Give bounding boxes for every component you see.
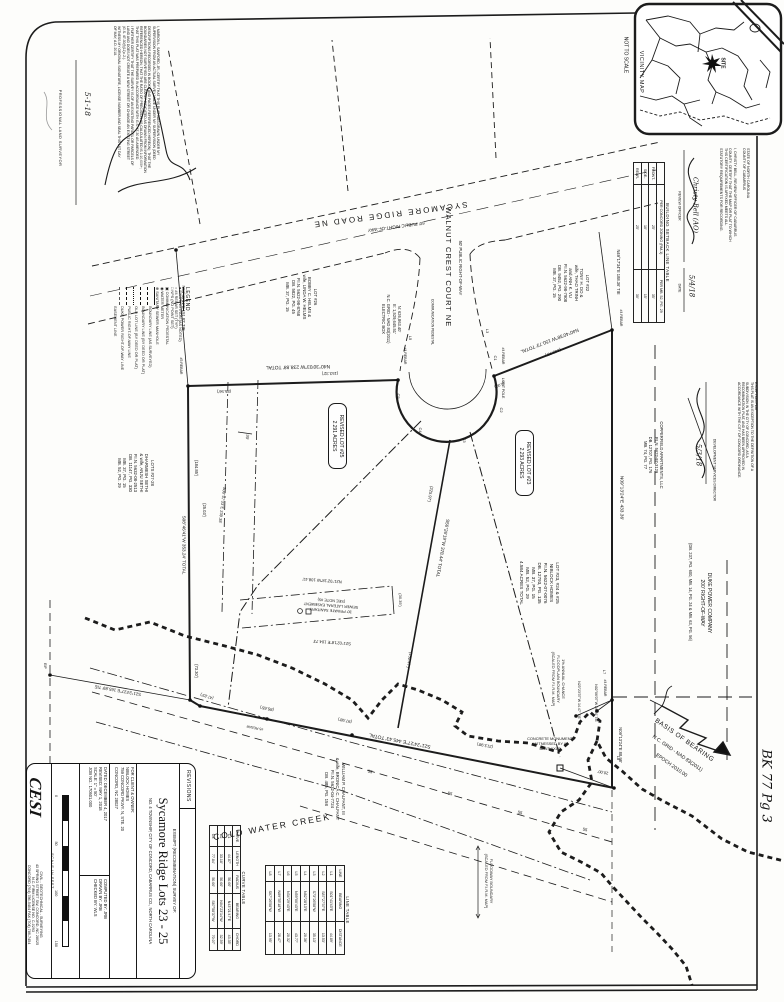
firm-phone-label: CONCORD (704) 786-5404 FAX (704) 786-745… bbox=[27, 831, 31, 978]
scale-bar-label: SCALE IN FEET bbox=[50, 795, 54, 947]
legend-label: BOUNDARY LINE (BY DEED OR PLAT) bbox=[141, 306, 145, 374]
table-cell: 15' bbox=[641, 270, 649, 323]
vicinity-scale-label: NOT TO SCALE bbox=[623, 37, 628, 73]
table-cell: 50.00' bbox=[217, 871, 225, 894]
setback-table-title: BUILDING SETBACK LINE TABLE bbox=[665, 162, 670, 323]
line-tag: L5 bbox=[408, 336, 412, 340]
firm-logo: CESI bbox=[26, 763, 45, 832]
table-cell: DISTANCE bbox=[336, 921, 345, 954]
table-cell: L3 bbox=[309, 866, 318, 882]
table-cell: REAR- bbox=[634, 163, 642, 185]
checked-by-label: CHECKED BY: WLS bbox=[93, 879, 98, 919]
interior-lot-lines bbox=[228, 421, 560, 757]
review-date: 5/4/18 bbox=[688, 275, 695, 298]
monument-note: CONCRETE MONUMENT WITNESSED BY A BENT AX… bbox=[520, 736, 580, 751]
table-cell: 32.59' bbox=[217, 928, 225, 950]
distance-label: (85.56') bbox=[217, 389, 231, 393]
table-cell: 35' bbox=[649, 270, 657, 323]
rebar-label: #4 REBAR bbox=[602, 680, 606, 697]
distance-label: (153.32') bbox=[322, 371, 338, 375]
bearing-label: N40°30'03"W 238.88' TOTAL bbox=[266, 363, 330, 369]
grid-coordinate-block: N: 626,863.40' E: 1,529,645.51' N.C. GRI… bbox=[381, 288, 402, 350]
table-row: FRONT-25'35' bbox=[649, 163, 657, 323]
owner-block: LOT #23, #24 & #25 NIBLOCK HOMES P.I.N. … bbox=[518, 543, 560, 623]
table-row: C233.18'50.00'N04°23'14"W32.59' bbox=[217, 826, 225, 951]
adjoiner-lot22: LOT #22 TONY H. DO & wife, THAO TRINH an… bbox=[551, 246, 590, 320]
scale-bar: 0 50 100 150 SCALE IN FEET bbox=[51, 764, 79, 978]
table-row: C144.87'50.00'N43°21'47"E43.35' bbox=[225, 826, 233, 951]
table-cell: 28.47' bbox=[274, 921, 283, 954]
title-block: REVISIONS EXEMPT (RECOMBINATION) SURVEY … bbox=[26, 763, 196, 979]
survey-location: NO. 4 TOWNSHIP, CITY OF CONCORD, CABARRU… bbox=[148, 764, 153, 978]
light-pole-label: LIGHT POLE bbox=[500, 378, 504, 399]
comm-pedestal-label: COMMUNICATION PEDESTAL bbox=[430, 299, 433, 345]
table-cell: RADIUS bbox=[233, 871, 241, 894]
book-page-annotation: BK 77 Pg 3 bbox=[760, 749, 773, 823]
rebar-label: #5 REBAR bbox=[178, 358, 182, 375]
bearing-label: N04°46'41"E 151.82' TIE bbox=[181, 285, 185, 330]
table-cell: SIDE- bbox=[641, 163, 649, 185]
bearing-label: N23°23'37"W 14.47' TIE bbox=[576, 681, 580, 719]
easement-lines bbox=[222, 380, 394, 628]
distance-label: (184.85') bbox=[194, 460, 198, 476]
review-date-label: DATE bbox=[677, 284, 680, 293]
scale-tick: 100 bbox=[54, 890, 58, 896]
water-meter-icon: ◉ bbox=[160, 287, 164, 290]
curve-tag: C4 bbox=[418, 427, 422, 432]
curve-tag: C2 bbox=[499, 407, 503, 412]
table-row: L2S87°27'37"E13.53' bbox=[318, 866, 327, 955]
table-cell: S01°41'43"E bbox=[327, 881, 336, 921]
legend-line-rows: BOUNDARY LINE (AS SURVEYED) BOUNDARY LIN… bbox=[113, 287, 155, 452]
distance-label: 20.00' bbox=[597, 769, 608, 775]
exception-role-label: DEVELOPMENT SERVICES DIRECTOR bbox=[712, 439, 715, 501]
table-cell: 25' bbox=[649, 185, 657, 270]
revisions-label: REVISIONS bbox=[180, 764, 195, 809]
table-row: PER CONCORD ZONING (RM-1) PER MB. 52, PG… bbox=[657, 163, 665, 323]
table-cell: N82°28'13"E bbox=[301, 881, 310, 921]
curve-tag: C5 bbox=[396, 393, 400, 398]
client-block: NIBLOCK HOMES 759 CONCORD PKWY. N, STE. … bbox=[114, 767, 130, 872]
walnut-road-label: WALNUT CREST COURT NE bbox=[444, 207, 452, 328]
legend-label: #4 REBAR SET (TYP.) bbox=[174, 290, 178, 328]
lot25-label: REVISED LOT #25 2.291 ACRES bbox=[328, 403, 347, 469]
floodplain-label: 1% ANNUAL CHANCE FLOODPLAIN BOUNDARY (SC… bbox=[551, 643, 566, 715]
table-cell: 44.87' bbox=[225, 847, 233, 871]
table-cell: N43°21'47"E bbox=[225, 894, 233, 929]
table-cell: 70.07' bbox=[210, 928, 218, 950]
scale-label: SCALE: 1" = 50' bbox=[93, 767, 98, 872]
legend-label: OLD LOT LINE (BY DEED OR PLAT) bbox=[134, 306, 138, 369]
table-cell: PER MB. 52, PG. 29 bbox=[657, 270, 665, 323]
table-row: C377.84'50.00'S67°58'37"W70.07' bbox=[210, 826, 218, 951]
table-cell: S67°58'37"W bbox=[210, 894, 218, 929]
lot23-label: REVISED LOT #23 2.293 ACRES bbox=[515, 430, 534, 496]
table-cell: N34°29'43"E bbox=[283, 881, 292, 921]
review-officer-label: REVIEW OFFICER bbox=[677, 191, 680, 220]
table-row: L6N34°29'43"E20.32' bbox=[283, 866, 292, 955]
duke-power-label: DUKE POWER COMPANY 200' RIGHT-OF-WAY bbox=[699, 548, 712, 658]
surveyor-role-label: PROFESSIONAL LAND SURVEYOR bbox=[58, 90, 62, 167]
sewer-manhole-icon: ⊕ bbox=[155, 287, 159, 290]
flood-tick-label: 55 bbox=[517, 810, 522, 815]
firm-address-label: 43 SPRING STREET SW, CONCORD, NC 28025 bbox=[35, 831, 39, 978]
table-cell: 20.32' bbox=[283, 921, 292, 954]
table-cell: 33.18' bbox=[217, 847, 225, 871]
exception-date: 5/3/18 bbox=[695, 444, 702, 467]
computed-by-label: COMPUTED BY: JRB bbox=[103, 879, 108, 919]
flood-tick-label: 55 bbox=[367, 769, 372, 774]
adjoiner-copperfield: COPPERFIELD APARTMENTS, LLC P.I.N. 5622-… bbox=[643, 410, 664, 500]
legend-label: BOUNDARY LINE (AS SURVEYED) bbox=[148, 306, 152, 367]
table-cell: 77.84' bbox=[210, 847, 218, 871]
table-row: L1S01°41'43"E44.89' bbox=[327, 866, 336, 955]
table-cell: 35.13' bbox=[309, 921, 318, 954]
distance-label: 30' bbox=[245, 434, 250, 440]
table-cell: CHORD bbox=[233, 928, 241, 950]
flood-tick-label: 55 bbox=[447, 791, 452, 796]
scale-tick: 0 bbox=[54, 795, 58, 797]
review-officer-certificate: STATE OF NORTH CAROLINA COUNTY OF CABARR… bbox=[719, 148, 750, 316]
table-cell: L2 bbox=[318, 866, 327, 882]
comm-pedestal-icon: ▣ bbox=[165, 287, 169, 291]
plat-sheet: I, MARION L. SANFORD, JR., CERTIFY THAT … bbox=[0, 0, 784, 1002]
table-cell: 20.36' bbox=[301, 921, 310, 954]
table-cell: L8 bbox=[266, 866, 275, 882]
line-table-title: LINE TABLE bbox=[345, 865, 350, 955]
survey-type-label: EXEMPT (RECOMBINATION) SURVEY OF: bbox=[172, 764, 177, 978]
client-label: FOR CLIENT & OWNER: bbox=[130, 767, 135, 813]
table-cell: N89°35'18"W bbox=[274, 881, 283, 921]
exception-certificate: EXCEPTION PLAT THIS PLAT IS AN EXCEPTION… bbox=[737, 382, 758, 512]
bearing-label: N02°06'07"W 24.64' TIE bbox=[593, 684, 597, 722]
table-cell: PER CONCORD ZONING (RM-1) bbox=[657, 185, 665, 270]
table-row: LINE BEARING DISTANCE bbox=[336, 866, 345, 955]
distance-label: (30.35') bbox=[398, 593, 402, 606]
rebar-label: #4 REBAR bbox=[500, 348, 504, 365]
survey-title: Sycamore Ridge Lots 23 - 25 bbox=[155, 764, 170, 978]
bearing-label: N09°13'24"E 433.36' bbox=[618, 476, 623, 520]
table-cell: 25' bbox=[634, 185, 642, 270]
legend-label: PUBLIC RIGHT-OF-WAY LINE bbox=[127, 306, 131, 358]
distance-label: (25.03') bbox=[202, 503, 206, 517]
line-table: LINE TABLE LINE BEARING DISTANCE L1S01°4… bbox=[260, 865, 350, 955]
table-row: REAR-25'30' bbox=[634, 163, 642, 323]
table-cell: S07°26'58"W bbox=[266, 881, 275, 921]
legend-label: COMMUNICATION PEDESTAL bbox=[165, 292, 169, 345]
table-row: L5N59°00'43"E43.77' bbox=[292, 866, 301, 955]
adjoiner-lot26: LOT #26 BOBBY C. HELMS & wife, LINDA W. … bbox=[285, 266, 318, 328]
rebar-label: #4 REBAR bbox=[402, 348, 406, 365]
table-cell: S87°27'37"E bbox=[318, 881, 327, 921]
rebar-label: #4 REBAR bbox=[618, 310, 622, 327]
table-cell: 13.95' bbox=[266, 921, 275, 954]
table-cell: N04°23'14"W bbox=[217, 894, 225, 929]
curve-table: CURVE TABLE CURVE LENGTH RADIUS BEARING … bbox=[205, 825, 246, 951]
table-cell bbox=[657, 163, 665, 185]
surveyor-certificate: I, MARION L. SANFORD, JR., CERTIFY THAT … bbox=[113, 26, 160, 208]
job-number-label: JOB NO.: 170501.000 bbox=[88, 767, 93, 872]
table-cell: 30' bbox=[634, 270, 642, 323]
review-signature-name: Christy Bell (AO) bbox=[692, 177, 699, 233]
setback-table: BUILDING SETBACK LINE TABLE PER CONCORD … bbox=[630, 162, 670, 323]
adjoiner-sethi: LOTS #27-28 DHARMESH SETHI & wife, ANJU … bbox=[116, 436, 155, 510]
distance-label: (73.30') bbox=[194, 664, 198, 678]
dated-label: DATED: DECEMBER 4, 2017 bbox=[103, 767, 108, 872]
floodway-label: FLOODWAY BOUNDARY (SCALED FROM F.I.R.M. … bbox=[484, 843, 494, 919]
firm-license-label: N.C. FIRM LICENSE NO. C-0293 bbox=[31, 831, 35, 978]
table-cell: 10' bbox=[641, 185, 649, 270]
table-cell: 43.35' bbox=[225, 928, 233, 950]
table-cell: BEARING bbox=[233, 894, 241, 929]
rebar-label: EIP bbox=[42, 663, 46, 669]
table-cell: 50.00' bbox=[210, 871, 218, 894]
legend: LEGEND ● EXISTING IRON (AS NOTED) ○ #4 R… bbox=[94, 287, 190, 452]
scale-tick: 150 bbox=[54, 941, 58, 947]
nps-icon: □ bbox=[170, 287, 174, 289]
table-row: CURVE LENGTH RADIUS BEARING CHORD bbox=[233, 826, 241, 951]
vicinity-title: VICINITY MAP bbox=[637, 51, 643, 94]
curve-tag: C3 bbox=[462, 437, 466, 442]
table-cell: L7 bbox=[274, 866, 283, 882]
table-cell: 50.00' bbox=[225, 871, 233, 894]
curve-tag: C1 bbox=[493, 355, 497, 360]
scale-tick: 50 bbox=[54, 841, 58, 845]
table-cell: L4 bbox=[301, 866, 310, 882]
table-row: L8S07°26'58"W13.95' bbox=[266, 866, 275, 955]
vicinity-map-sketch bbox=[635, 0, 784, 134]
legend-label: NPS (NO POINT SET) bbox=[170, 290, 174, 328]
walnut-row-label: 50' PUBLIC RIGHT-OF-WAY bbox=[458, 241, 462, 296]
table-cell: L5 bbox=[292, 866, 301, 882]
legend-label: DUKE POWER RIGHT-OF-WAY LINE bbox=[120, 306, 124, 370]
table-cell: FRONT- bbox=[649, 163, 657, 185]
table-row: L7N89°35'18"W28.47' bbox=[274, 866, 283, 955]
line-tag: L3 bbox=[485, 329, 489, 333]
table-cell: S73°26'58"W bbox=[309, 881, 318, 921]
flood-tick-label: 55 bbox=[582, 827, 587, 832]
table-cell: BEARING bbox=[336, 881, 345, 921]
table-cell: L6 bbox=[283, 866, 292, 882]
table-row: L4N82°28'13"E20.36' bbox=[301, 866, 310, 955]
table-cell: 13.53' bbox=[318, 921, 327, 954]
bearing-label: N49°17'34"E 188.36' TIE bbox=[616, 249, 620, 294]
site-label: SITE bbox=[720, 57, 725, 68]
curve-table-title: CURVE TABLE bbox=[241, 825, 246, 951]
legend-label: WATER METER bbox=[160, 291, 164, 319]
table-cell: L1 bbox=[327, 866, 336, 882]
table-row: SIDE-10'15' bbox=[641, 163, 649, 323]
rebar-set-icon: ○ bbox=[174, 287, 178, 289]
firm-services-label: CIVIL - GEOTECHNICAL - SURVEYING bbox=[39, 831, 43, 978]
table-cell: 44.89' bbox=[327, 921, 336, 954]
line-tag: L7 bbox=[602, 670, 606, 674]
bearing-label: S08°46'41"W 353.24' TOTAL bbox=[181, 516, 186, 575]
table-cell: LENGTH bbox=[233, 847, 241, 871]
surveyor-date: 5-1-18 bbox=[83, 92, 91, 116]
table-cell: N59°00'43"E bbox=[292, 881, 301, 921]
line-tag: L8 bbox=[616, 756, 620, 760]
duke-row-lines bbox=[612, 345, 752, 952]
table-row: L3S73°26'58"W35.13' bbox=[309, 866, 318, 955]
legend-label: SANITARY SEWER MANHOLE bbox=[155, 291, 159, 344]
legend-label: EASEMENT LINE bbox=[113, 306, 117, 336]
table-cell: 43.77' bbox=[292, 921, 301, 954]
table-cell: LINE bbox=[336, 866, 345, 882]
duke-power-ref: (DB. 237, PG. 600, MB. 14, PG. 24 & MB. … bbox=[688, 543, 692, 641]
